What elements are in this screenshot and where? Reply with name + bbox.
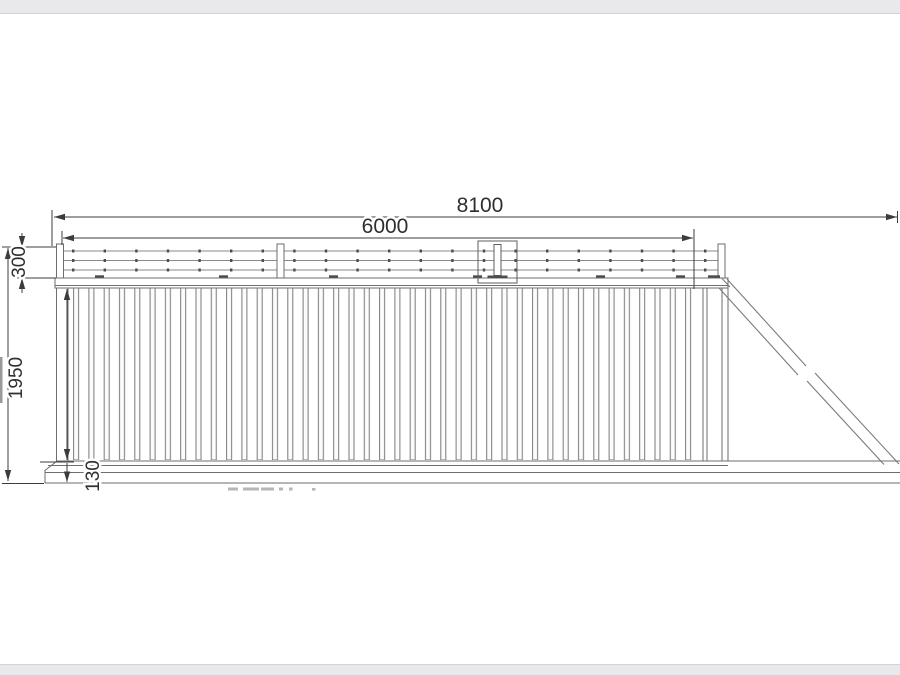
dimension-label-body-height: 1950 <box>6 357 27 399</box>
dimension-label-opening-width: 6000 <box>362 215 409 238</box>
gate-slats <box>73 288 700 460</box>
dimension-label-topper-height: 300 <box>9 246 30 278</box>
gate-body <box>45 278 900 483</box>
topper-post-left <box>57 244 64 278</box>
gate-bottom-rail <box>45 461 900 483</box>
dimension-body-height: 1950 <box>6 289 70 460</box>
drawing-canvas: 8100 6000 <box>0 0 900 675</box>
topper-post-right <box>718 244 725 278</box>
dimension-bottom-rail-height: 130 <box>64 460 104 492</box>
gate-top-rail <box>55 278 728 288</box>
gate-right-stile <box>703 288 728 461</box>
cropped-text-marks <box>228 488 316 491</box>
diagonal-brace <box>719 279 899 465</box>
tension-wires <box>63 251 719 270</box>
topper-posts <box>57 244 726 278</box>
topper-post-middle <box>277 244 284 278</box>
dimension-label-total-width: 8100 <box>457 194 504 217</box>
wire-topper <box>57 241 726 283</box>
gate-technical-drawing: 8100 6000 <box>0 0 900 675</box>
clipped-dimension-label <box>0 357 3 403</box>
dimension-topper-height: 300 <box>9 233 30 293</box>
dimension-label-bottom-rail-height: 130 <box>83 460 104 492</box>
gate-left-stile <box>57 288 69 461</box>
